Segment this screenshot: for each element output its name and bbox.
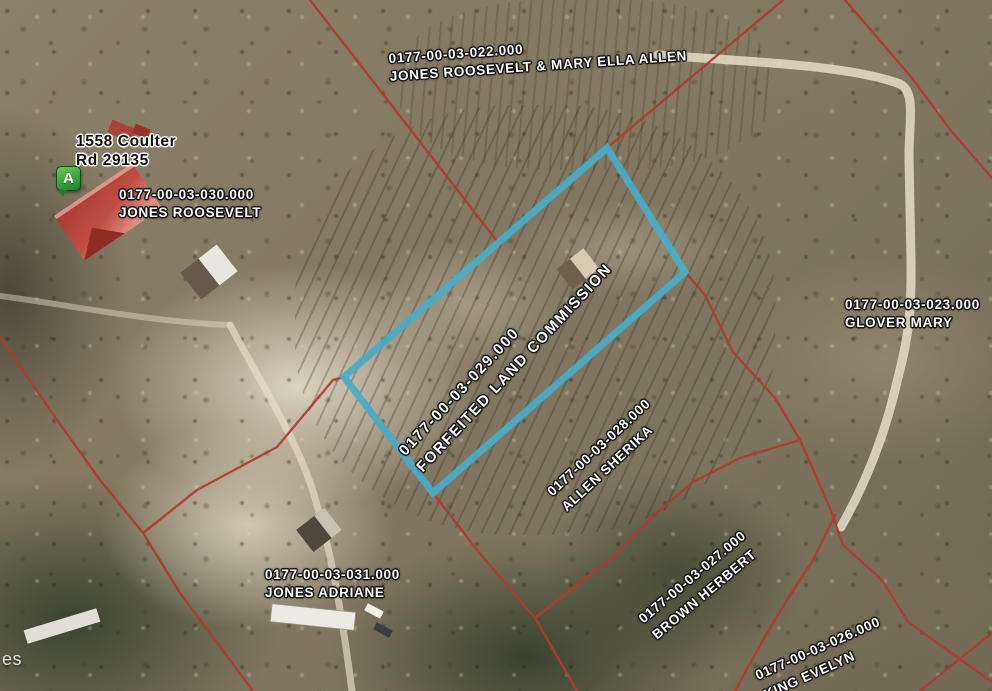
dark-roof-house xyxy=(296,508,342,552)
parcel-owner: GLOVER MARY xyxy=(845,314,980,332)
parked-cars xyxy=(364,603,393,638)
parcel-id: 0177-00-03-031.000 xyxy=(265,566,400,584)
dirt-road-right xyxy=(658,55,911,527)
parcel-boundary-line xyxy=(920,633,992,691)
parcel-label-031: 0177-00-03-031.000 JONES ADRIANE xyxy=(265,566,400,602)
address-line1: 1558 Coulter xyxy=(76,132,176,151)
marker-letter: A xyxy=(63,170,74,187)
address-label: 1558 Coulter Rd 29135 xyxy=(76,132,176,170)
parcel-boundary-line xyxy=(607,0,783,148)
white-mobile-home xyxy=(24,608,101,644)
parcel-boundary-line xyxy=(685,272,992,682)
watermark-fragment: es xyxy=(2,649,22,670)
parcel-id: 0177-00-03-030.000 xyxy=(119,186,261,204)
parcel-boundary-line xyxy=(845,0,992,178)
gray-shed xyxy=(180,244,237,299)
parcel-label-030: 0177-00-03-030.000 JONES ROOSEVELT xyxy=(119,186,261,222)
driveway xyxy=(0,296,230,325)
parcel-owner: JONES ADRIANE xyxy=(265,584,400,602)
parcel-owner: JONES ROOSEVELT xyxy=(119,204,261,222)
parcel-id: 0177-00-03-023.000 xyxy=(845,296,980,314)
parcel-boundary-line xyxy=(433,493,577,691)
parcel-label-023: 0177-00-03-023.000 GLOVER MARY xyxy=(845,296,980,332)
parcel-boundary-line xyxy=(310,0,500,245)
map-marker-a[interactable]: A xyxy=(56,166,81,191)
parcel-boundary-line xyxy=(143,377,344,533)
address-line2: Rd 29135 xyxy=(76,151,176,170)
map-viewport[interactable]: 0177-00-03-022.000 JONES ROOSEVELT & MAR… xyxy=(0,0,992,691)
